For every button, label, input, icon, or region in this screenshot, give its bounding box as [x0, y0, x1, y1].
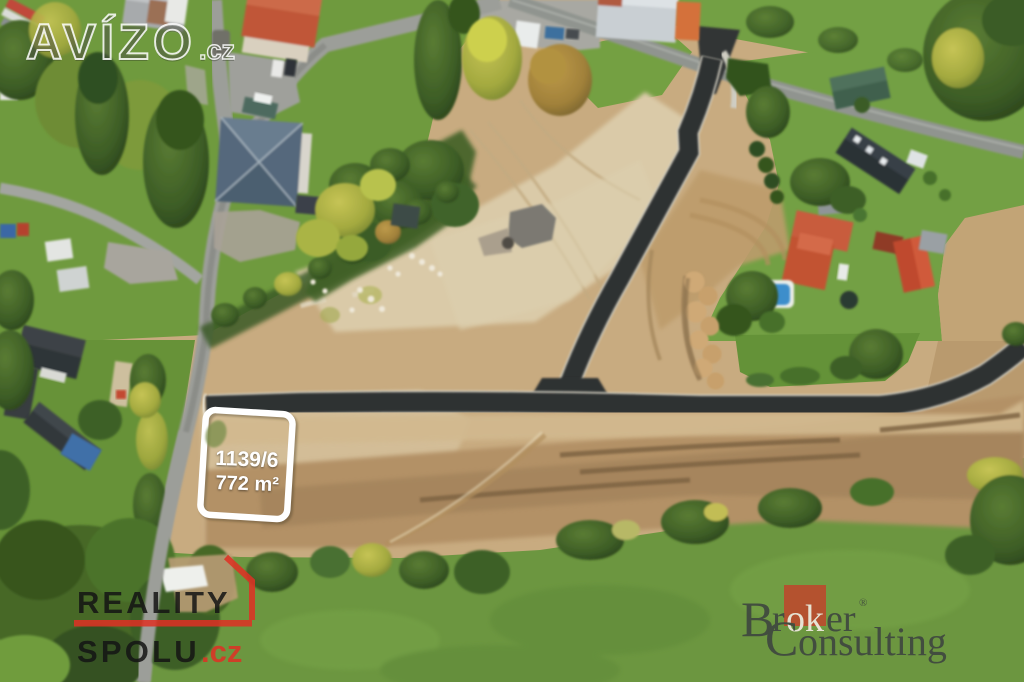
svg-text:Consulting: Consulting [765, 610, 947, 666]
svg-text:REALITY: REALITY [77, 585, 231, 620]
svg-text:.cz: .cz [199, 35, 235, 65]
svg-text:1139/6: 1139/6 [215, 447, 279, 472]
svg-text:AVÍZO: AVÍZO [26, 14, 196, 70]
svg-text:SPOLU: SPOLU [77, 634, 200, 669]
svg-text:.cz: .cz [201, 634, 242, 669]
svg-text:772 m²: 772 m² [215, 472, 279, 496]
